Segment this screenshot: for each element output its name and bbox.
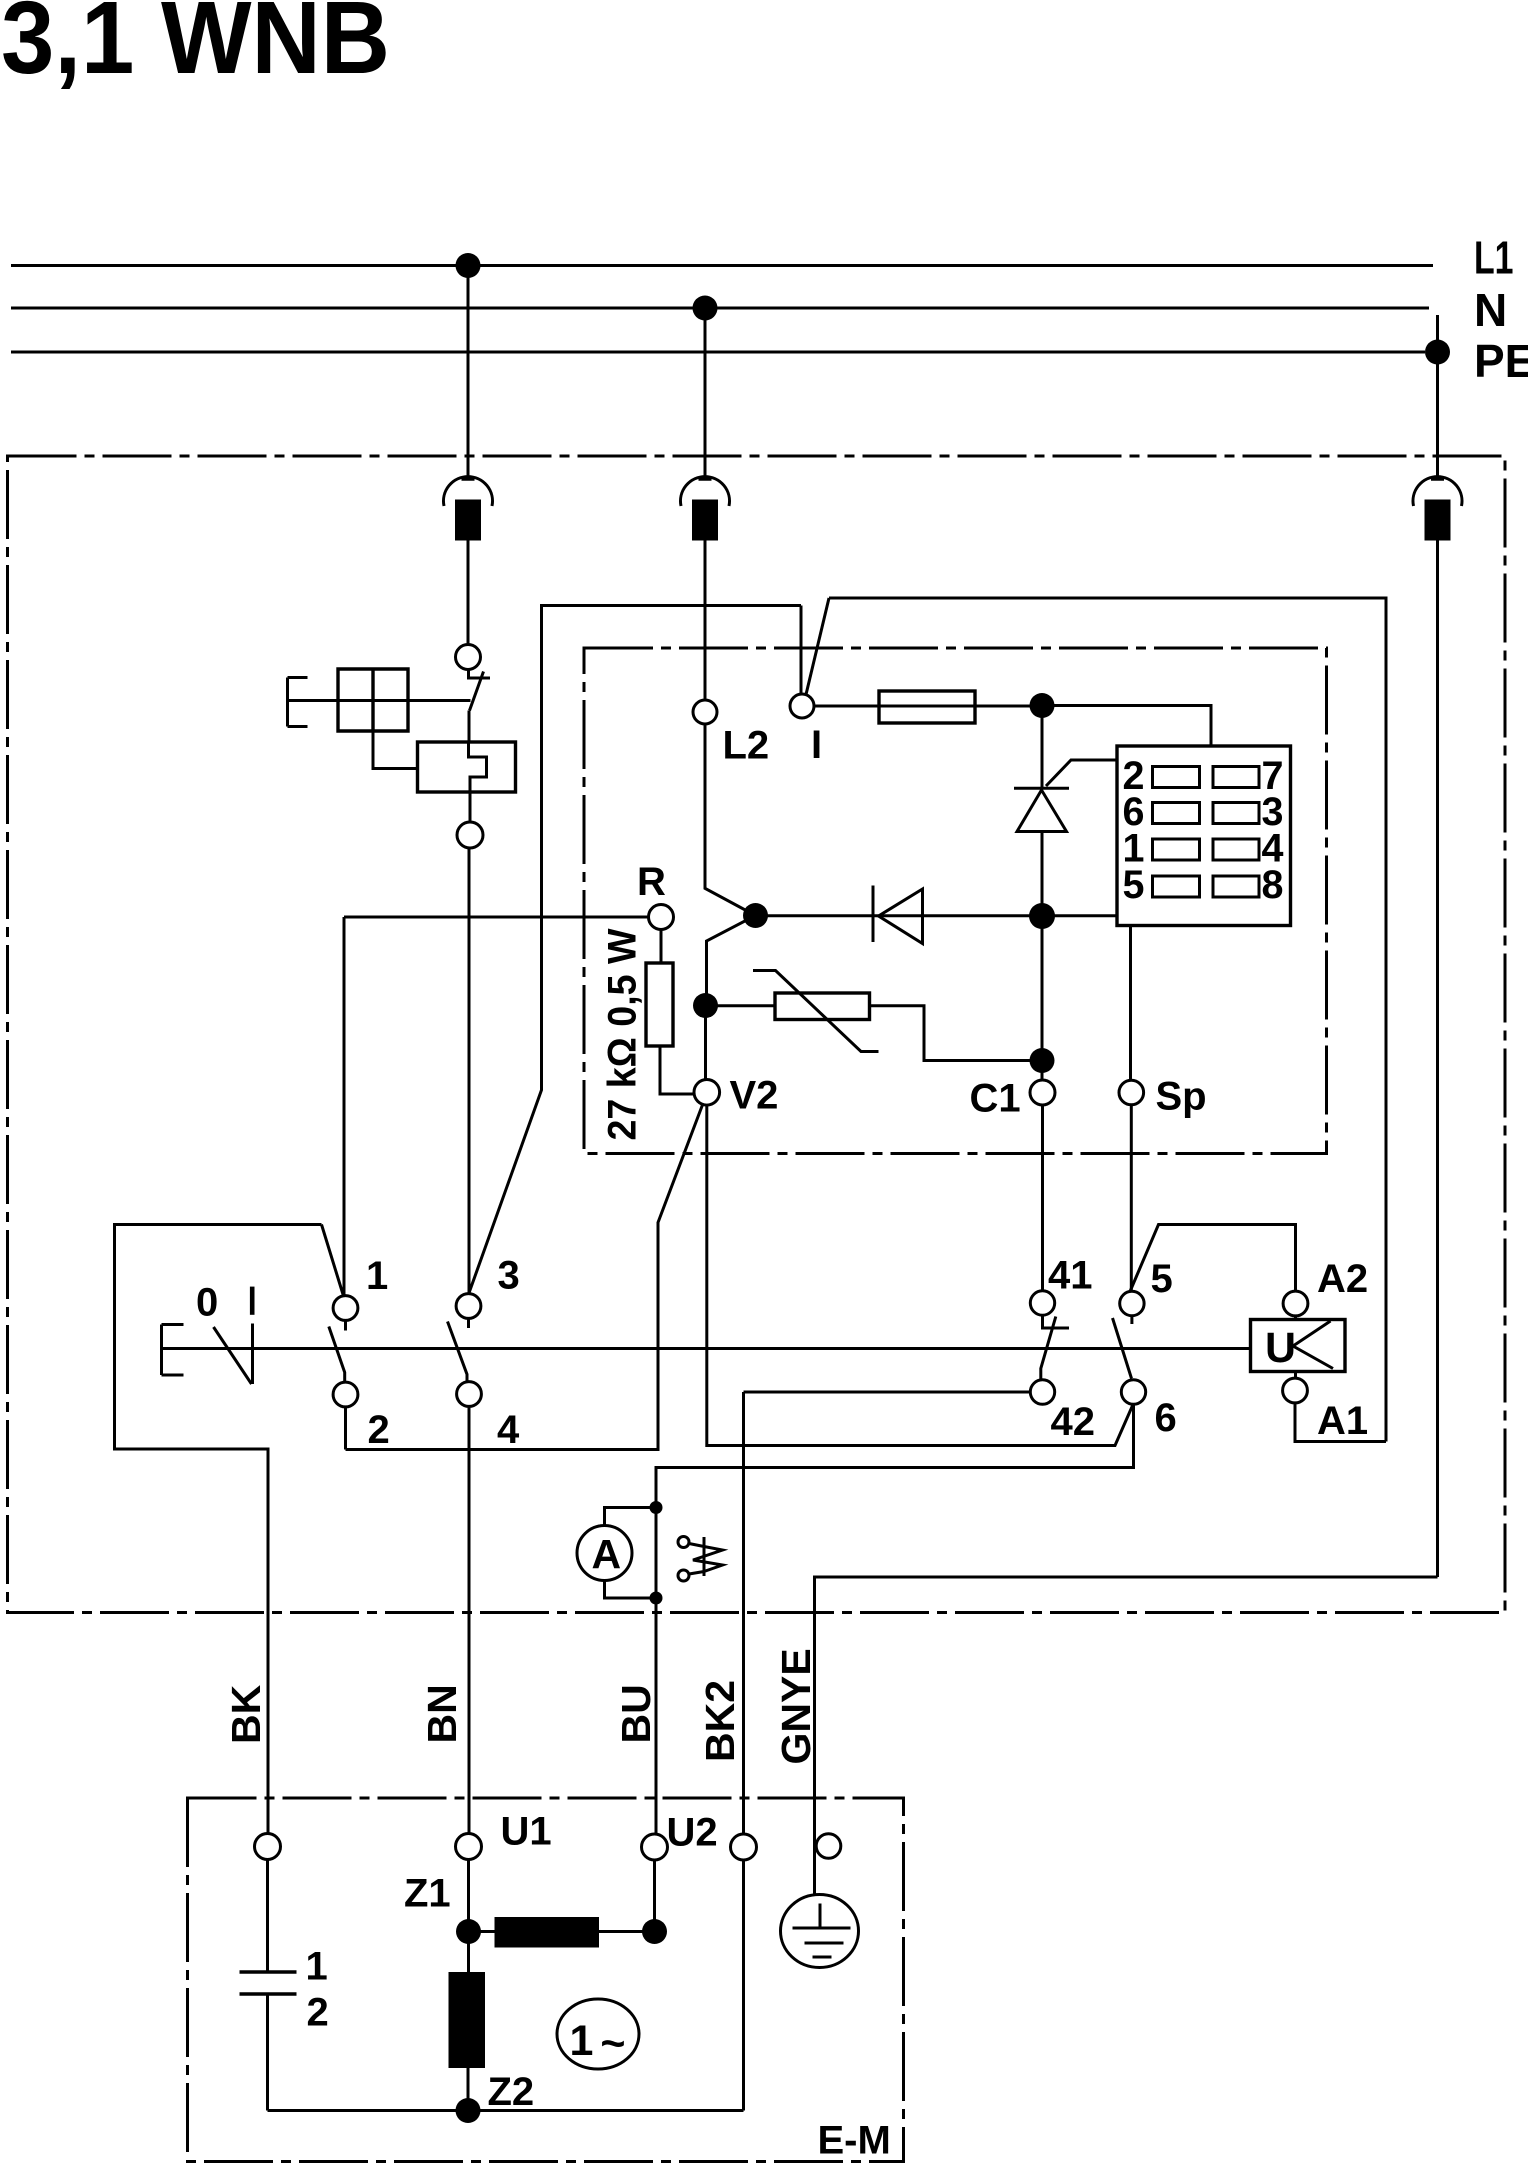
svg-text:A1: A1 — [1317, 1399, 1368, 1443]
svg-text:C1: C1 — [970, 1077, 1021, 1121]
svg-text:PE: PE — [1474, 335, 1528, 387]
svg-text:BN: BN — [419, 1684, 465, 1743]
svg-text:A: A — [592, 1531, 622, 1577]
svg-text:4: 4 — [497, 1408, 520, 1452]
svg-text:2: 2 — [307, 1991, 329, 2035]
svg-text:27 kΩ 0,5 W: 27 kΩ 0,5 W — [601, 928, 645, 1141]
svg-text:1: 1 — [306, 1945, 328, 1989]
svg-text:U: U — [1265, 1324, 1296, 1372]
svg-text:Z1: Z1 — [404, 1872, 451, 1916]
svg-text:I: I — [811, 723, 822, 767]
svg-text:L2: L2 — [723, 724, 770, 768]
svg-text:A2: A2 — [1317, 1257, 1368, 1301]
svg-text:5: 5 — [1123, 863, 1145, 907]
svg-text:3,1 WNB: 3,1 WNB — [1, 0, 390, 95]
svg-text:3: 3 — [498, 1254, 520, 1298]
svg-text:1: 1 — [366, 1254, 388, 1298]
svg-text:L1: L1 — [1474, 232, 1514, 284]
svg-text:E-M: E-M — [818, 2119, 891, 2163]
svg-text:V2: V2 — [730, 1074, 779, 1118]
svg-text:6: 6 — [1155, 1396, 1177, 1440]
svg-text:N: N — [1474, 284, 1507, 336]
svg-text:42: 42 — [1051, 1400, 1096, 1444]
svg-text:2: 2 — [368, 1408, 390, 1452]
svg-text:0: 0 — [196, 1281, 218, 1325]
svg-text:U1: U1 — [501, 1810, 552, 1854]
svg-text:41: 41 — [1048, 1254, 1093, 1298]
svg-text:8: 8 — [1262, 863, 1284, 907]
svg-text:BU: BU — [613, 1684, 659, 1743]
svg-text:U2: U2 — [667, 1811, 718, 1855]
svg-text:BK: BK — [223, 1684, 269, 1744]
svg-text:Sp: Sp — [1156, 1075, 1207, 1119]
svg-text:GNYE: GNYE — [773, 1648, 819, 1764]
svg-text:5: 5 — [1151, 1257, 1173, 1301]
svg-text:R: R — [637, 860, 666, 904]
svg-text:BK2: BK2 — [697, 1680, 743, 1762]
svg-text:Z2: Z2 — [488, 2070, 535, 2114]
